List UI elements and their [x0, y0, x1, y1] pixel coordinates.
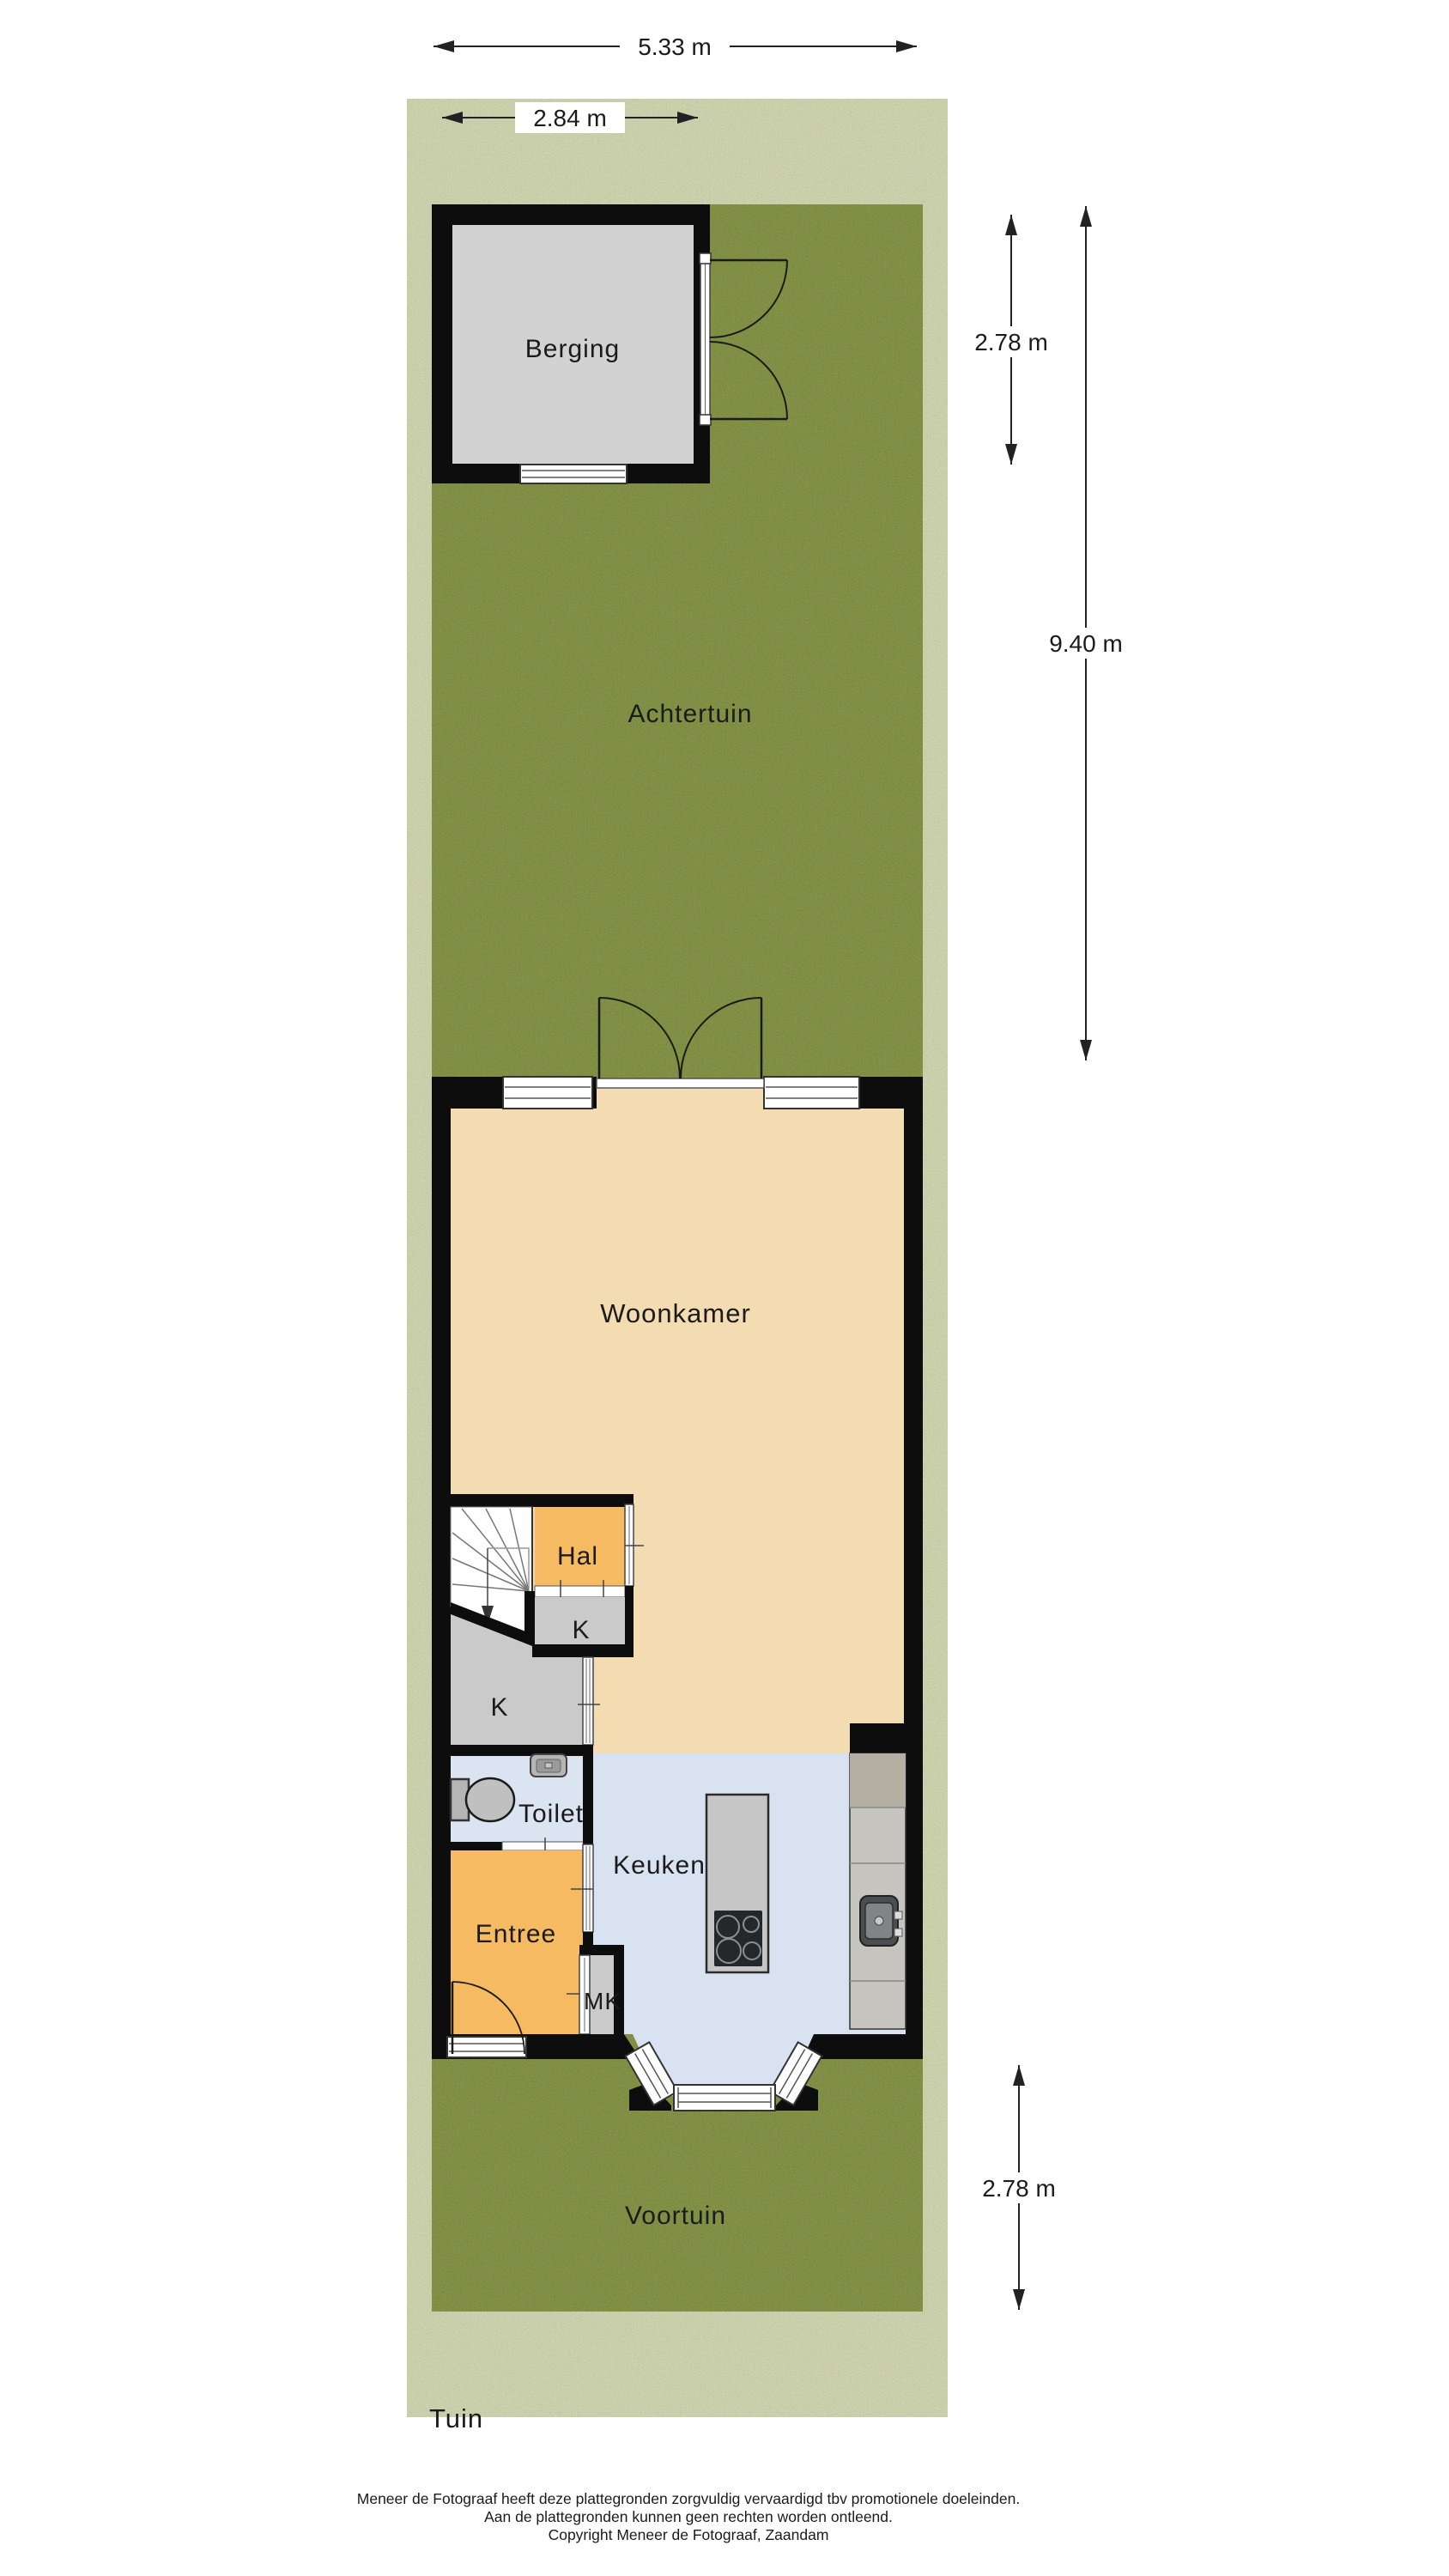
room-label-mk: MK: [584, 1988, 621, 2014]
dimension-voortuin-depth: 2.78 m: [966, 2065, 1072, 2310]
kitchen-island: [706, 1795, 768, 1972]
svg-text:5.33 m: 5.33 m: [638, 33, 712, 60]
wall-top-left-corner: [432, 1077, 503, 1109]
toilet-sink: [530, 1754, 567, 1777]
page-title: Tuin: [429, 2403, 483, 2433]
room-label-closet-large: K: [490, 1693, 508, 1722]
wall-stairblock-top: [432, 1494, 634, 1507]
room-label-closet-small: K: [572, 1616, 590, 1644]
floorplan-canvas: Berging Achtertuin Woo: [0, 0, 1449, 2576]
svg-text:2.78 m: 2.78 m: [974, 329, 1048, 355]
wall-left: [432, 1077, 451, 2059]
svg-text:2.78 m: 2.78 m: [982, 2175, 1056, 2202]
room-label-entree: Entree: [476, 1920, 556, 1948]
bay-window-front: [674, 2085, 775, 2111]
room-label-hal: Hal: [557, 1542, 598, 1571]
kitchen-sink: [860, 1896, 902, 1946]
rear-window-left: [503, 1077, 592, 1109]
wall-toilet-bottom: [432, 1842, 502, 1850]
room-label-woonkamer: Woonkamer: [600, 1298, 751, 1328]
dimension-total-width: 5.33 m: [433, 31, 917, 62]
footer-line-3: Copyright Meneer de Fotograaf, Zaandam: [549, 2526, 829, 2543]
footer-line-2: Aan de plattegronden kunnen geen rechten…: [484, 2508, 893, 2525]
house: Woonkamer: [432, 998, 923, 2111]
wall-closet-small-bottom: [524, 1644, 634, 1657]
svg-text:9.40 m: 9.40 m: [1049, 630, 1123, 657]
dimension-berging-width: 2.84 m: [442, 102, 698, 133]
wall-toilet-top: [432, 1745, 593, 1756]
dimension-berging-depth: 2.78 m: [958, 215, 1064, 465]
wall-stub-right: [850, 1723, 921, 1753]
kitchen-counter: [850, 1753, 906, 2029]
bay-window: [626, 2034, 822, 2111]
wall-closet-small-right: [625, 1586, 634, 1657]
room-label-berging: Berging: [525, 335, 620, 363]
wall-right: [904, 1077, 923, 2059]
rear-window-right: [764, 1077, 859, 1109]
room-label-toilet: Toilet: [518, 1800, 584, 1828]
wall-entree-keuken-upper: [583, 1753, 593, 1844]
footer-disclaimer: Meneer de Fotograaf heeft deze plattegro…: [357, 2490, 1020, 2543]
wall-top-right-corner: [859, 1077, 923, 1109]
svg-text:2.84 m: 2.84 m: [533, 105, 607, 131]
room-label-voortuin: Voortuin: [625, 2202, 726, 2230]
toilet-fixture: [451, 1778, 514, 1821]
room-label-keuken: Keuken: [613, 1851, 706, 1880]
berging-window: [520, 465, 627, 483]
footer-line-1: Meneer de Fotograaf heeft deze plattegro…: [357, 2490, 1020, 2507]
room-label-achtertuin: Achtertuin: [627, 700, 752, 728]
